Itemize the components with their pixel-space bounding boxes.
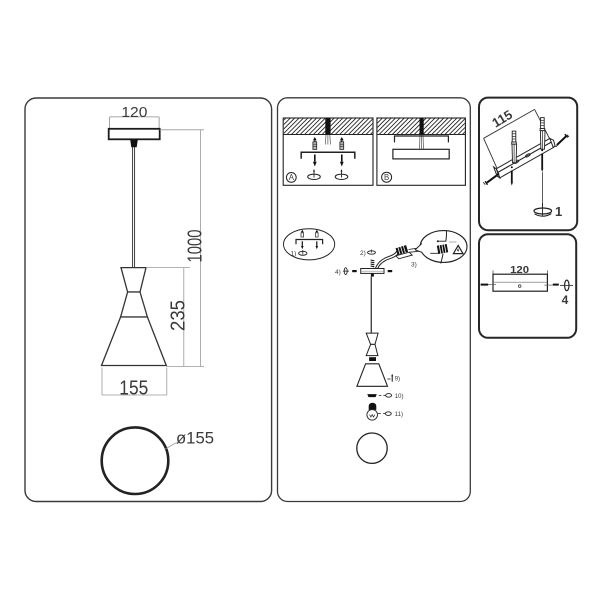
svg-text:120: 120 xyxy=(121,104,147,121)
svg-text:3): 3) xyxy=(411,262,417,269)
svg-text:4: 4 xyxy=(562,293,569,307)
svg-text:4): 4) xyxy=(335,269,341,276)
svg-text:2): 2) xyxy=(360,250,366,257)
svg-text:235: 235 xyxy=(168,300,190,331)
svg-text:11): 11) xyxy=(395,411,403,418)
svg-text:B: B xyxy=(384,173,389,182)
svg-text:1000: 1000 xyxy=(184,230,206,263)
svg-text:9): 9) xyxy=(395,375,401,382)
svg-text:1): 1) xyxy=(291,251,297,258)
svg-text:1: 1 xyxy=(555,204,562,219)
svg-text:10): 10) xyxy=(395,393,404,400)
svg-text:ø155: ø155 xyxy=(176,429,214,448)
svg-text:A: A xyxy=(289,173,295,182)
svg-text:155: 155 xyxy=(119,378,148,400)
